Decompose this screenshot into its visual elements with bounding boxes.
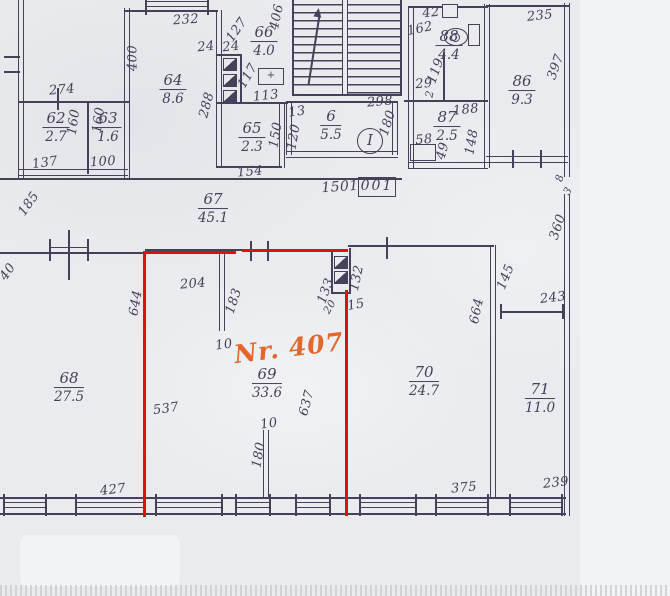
dim-tick xyxy=(68,230,70,280)
dim-label-375: 375 xyxy=(450,479,477,496)
wall xyxy=(18,101,130,103)
dim-label-637: 637 xyxy=(296,388,317,417)
wall xyxy=(4,56,20,58)
window-tick xyxy=(540,150,542,168)
highlight-line-top xyxy=(242,249,348,252)
stamp-001: 001 xyxy=(358,177,396,197)
dim-label-406: 406 xyxy=(267,3,287,32)
window-symbol xyxy=(156,502,222,508)
highlight-line-top xyxy=(143,251,236,254)
room-label-86: 869.3 xyxy=(508,74,535,108)
dim-label-49: 49 xyxy=(434,141,453,162)
dim-label-24b: 24 xyxy=(222,39,241,56)
window-symbol xyxy=(296,502,330,508)
toilet-tank-icon xyxy=(468,24,480,46)
shaft-hatch-icon xyxy=(334,256,348,269)
fixture-mark: + xyxy=(267,70,275,81)
window-symbol xyxy=(4,502,46,508)
dim-tick xyxy=(500,304,502,319)
scan-margin xyxy=(580,0,670,596)
dim-label-120: 120 xyxy=(284,123,303,151)
dim-label-2: 2 xyxy=(423,89,436,98)
dim-label-58: 58 xyxy=(415,132,434,148)
wall xyxy=(348,245,494,247)
wall xyxy=(216,10,222,168)
dim-label-13: 13 xyxy=(287,103,306,120)
wall xyxy=(18,0,24,180)
wall xyxy=(0,497,566,499)
window-symbol xyxy=(146,1,208,7)
room-label-67: 6745.1 xyxy=(198,192,228,226)
wall xyxy=(564,194,570,516)
dim-label-274: 274 xyxy=(48,81,75,98)
dim-label-239: 239 xyxy=(542,474,569,492)
dim-label-400: 400 xyxy=(126,45,141,71)
wall xyxy=(400,0,402,95)
wall xyxy=(0,513,566,515)
dim-label-100: 100 xyxy=(90,154,117,171)
wall xyxy=(124,8,130,180)
dim-label-113: 113 xyxy=(252,87,279,105)
dim-label-10a: 10 xyxy=(214,336,233,353)
stair-arrowhead-icon xyxy=(313,7,322,17)
stair-treads xyxy=(348,4,400,94)
floor-plan: + xyxy=(0,0,670,596)
room-label-6: 65.5 xyxy=(320,109,341,143)
wall xyxy=(484,4,490,168)
room-label-64: 648.6 xyxy=(159,73,186,107)
wall xyxy=(486,5,570,7)
fixture-box: + xyxy=(258,68,284,85)
dim-line xyxy=(500,311,564,313)
dim-label-664: 664 xyxy=(467,297,487,326)
wall xyxy=(286,151,398,158)
window-symbol xyxy=(236,502,270,508)
dim-label-160a: 160 xyxy=(65,108,83,136)
window-symbol xyxy=(510,502,562,508)
vent-box xyxy=(442,4,458,18)
wall xyxy=(124,10,218,12)
wall xyxy=(87,101,89,174)
window-tick xyxy=(512,150,514,168)
room-label-65: 652.3 xyxy=(238,121,265,155)
dim-label-15: 15 xyxy=(346,296,366,314)
dim-label-148: 148 xyxy=(462,128,481,156)
dim-label-1501: 1501 xyxy=(321,178,359,197)
dim-label-40: 40 xyxy=(0,261,19,284)
wall xyxy=(408,162,488,169)
dim-label-537: 537 xyxy=(152,400,180,418)
room-label-71: 7111.0 xyxy=(525,382,555,416)
room-label-70: 7024.7 xyxy=(409,365,439,399)
wall xyxy=(564,3,570,177)
dim-label-145: 145 xyxy=(494,262,518,292)
wall xyxy=(4,71,20,73)
dim-label-298: 298 xyxy=(366,93,393,110)
shaft-hatch-icon xyxy=(223,74,237,87)
dim-label-183: 183 xyxy=(223,286,245,315)
scan-patch xyxy=(20,535,180,587)
wall xyxy=(486,156,568,163)
window-symbol xyxy=(436,502,488,508)
dim-label-232: 232 xyxy=(173,12,200,29)
dim-label-204: 204 xyxy=(179,275,206,292)
room-label-66: 664.0 xyxy=(250,25,277,59)
dim-label-154: 154 xyxy=(236,163,263,180)
door-tick xyxy=(386,237,388,259)
wall-stub xyxy=(219,251,225,331)
dim-label-235: 235 xyxy=(526,7,553,25)
highlight-line-right xyxy=(345,290,348,516)
window-symbol xyxy=(76,502,144,508)
room-label-69: 6933.6 xyxy=(252,367,282,401)
dim-label-243: 243 xyxy=(539,289,567,307)
dim-label-427: 427 xyxy=(99,481,127,499)
dim-tick xyxy=(562,304,564,319)
room-label-68: 6827.5 xyxy=(54,371,84,405)
dim-label-288: 288 xyxy=(196,90,217,119)
dim-label-185: 185 xyxy=(15,189,42,219)
shaft-hatch-icon xyxy=(223,58,237,71)
flat-number-annotation: Nr. 407 xyxy=(232,327,345,369)
scan-edge-texture xyxy=(0,585,670,596)
window-symbol xyxy=(360,502,416,508)
dim-label-10b: 10 xyxy=(259,415,278,432)
dim-label-188: 188 xyxy=(452,101,479,119)
dim-label-24a: 24 xyxy=(197,39,216,56)
